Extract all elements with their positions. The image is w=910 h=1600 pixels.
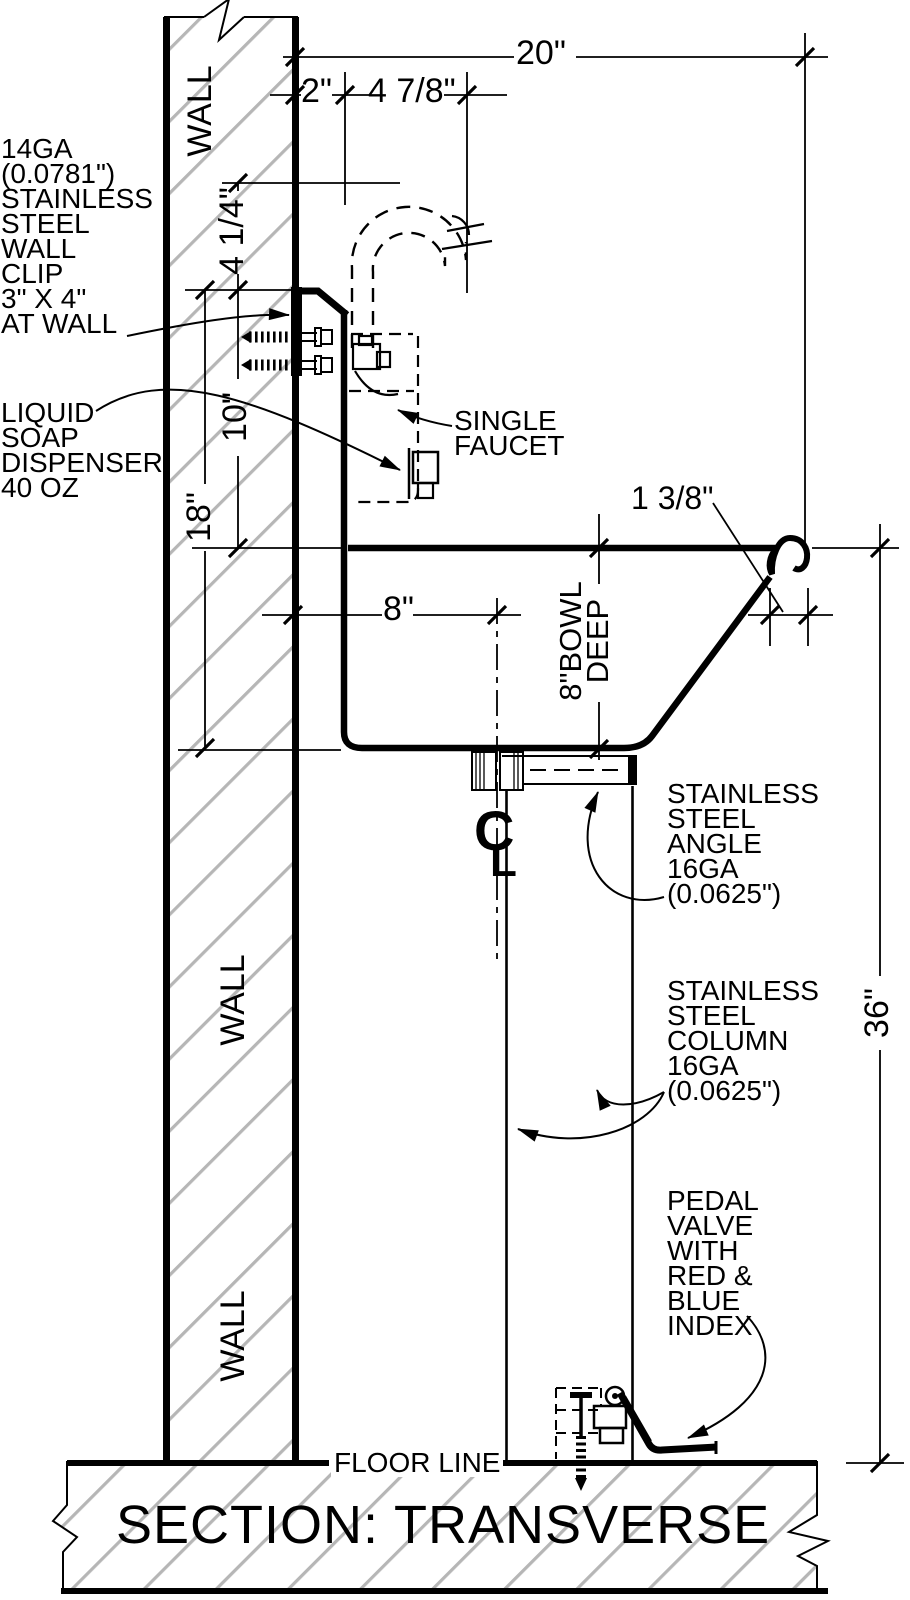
soap-dispenser-figure <box>409 448 438 499</box>
callout-column-line5: (0.0625") <box>667 1078 819 1103</box>
leader-column-left <box>518 1092 664 1138</box>
rolled-rim <box>770 538 807 574</box>
foot-pedal <box>620 1393 717 1450</box>
callout-steel-column: STAINLESS STEEL COLUMN 16GA (0.0625") <box>667 978 819 1103</box>
wall-label-bottom: WALL <box>216 1290 250 1381</box>
wall-label-top: WALL <box>183 65 217 156</box>
column-figure: C L <box>474 598 633 1461</box>
dim-bowl-depth: 8"BOWL DEEP <box>557 581 611 701</box>
dim-faucet-center: 4 7/8" <box>368 74 456 108</box>
dim-drain-center: 8" <box>383 592 414 626</box>
dim-clip-drop: 4 1/4" <box>215 187 249 275</box>
dim-bowl-depth-line2: DEEP <box>584 581 611 701</box>
callout-soap-line4: 40 OZ <box>1 475 163 500</box>
sink-body <box>291 287 807 748</box>
wall-label-middle: WALL <box>216 954 250 1045</box>
callout-faucet-line2: FAUCET <box>454 433 564 458</box>
callout-pedal-line6: INDEX <box>667 1313 759 1338</box>
dimension-ticks <box>196 48 889 1472</box>
leader-column-right <box>597 1090 664 1105</box>
dim-total-depth: 20" <box>516 36 566 70</box>
callout-single-faucet: SINGLE FAUCET <box>454 408 564 458</box>
callout-wall-clip: 14GA (0.0781") STAINLESS STEEL WALL CLIP… <box>1 136 153 336</box>
leader-steel-angle <box>588 792 664 900</box>
dim-rim-height: 36" <box>860 988 894 1038</box>
dim-rim-to-bowl-bottom: 18" <box>182 492 216 542</box>
dim-rim-roll: 1 3/8" <box>631 482 714 514</box>
drawing-canvas: C L <box>0 0 910 1600</box>
dim-backsplash-setback: 2" <box>301 74 332 108</box>
callout-steel-angle: STAINLESS STEEL ANGLE 16GA (0.0625") <box>667 781 819 906</box>
callout-soap-dispenser: LIQUID SOAP DISPENSER 40 OZ <box>1 400 163 500</box>
callout-angle-line5: (0.0625") <box>667 881 819 906</box>
section-title: SECTION: TRANSVERSE <box>116 1498 770 1552</box>
floor-line-label: FLOOR LINE <box>331 1449 503 1477</box>
callout-pedal-valve: PEDAL VALVE WITH RED & BLUE INDEX <box>667 1188 759 1338</box>
callout-wall-clip-line8: AT WALL <box>1 311 153 336</box>
leader-single-faucet <box>398 410 452 426</box>
dim-clip-to-rim: 10" <box>218 392 252 442</box>
centerline-symbol-l: L <box>490 837 517 886</box>
